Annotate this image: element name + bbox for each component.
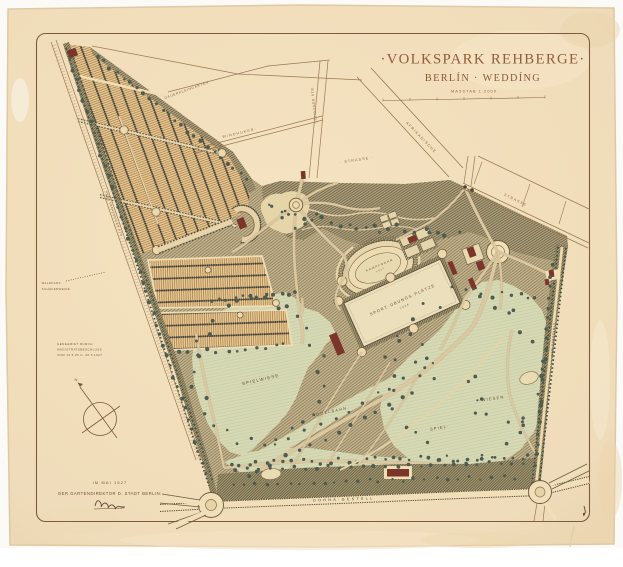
svg-text:VOM 10.5.26 U. 20.5.1927: VOM 10.5.26 U. 20.5.1927 [57, 353, 102, 357]
svg-text:GENEHMIGT DURCH: GENEHMIGT DURCH [57, 342, 93, 346]
svg-text:WALDPARK·: WALDPARK· [42, 281, 63, 285]
svg-text:·VOLKSPARK REHBERGE·: ·VOLKSPARK REHBERGE· [380, 52, 585, 68]
svg-text:MASSTAB 1:2000: MASSTAB 1:2000 [451, 90, 497, 94]
svg-text:MAGISTRATSBESCHLUSS: MAGISTRATSBESCHLUSS [57, 348, 102, 352]
svg-text:BERLÍN · WEDDÍNG: BERLÍN · WEDDÍNG [425, 72, 541, 84]
svg-text:N: N [75, 377, 78, 382]
svg-text:DER GARTENDIREKTOR D. STADT BE: DER GARTENDIREKTOR D. STADT BERLIN: [58, 491, 162, 496]
svg-text:IM MAI 1927: IM MAI 1927 [93, 481, 128, 485]
svg-text:SCHÄFERWEIDE: SCHÄFERWEIDE [42, 287, 70, 291]
